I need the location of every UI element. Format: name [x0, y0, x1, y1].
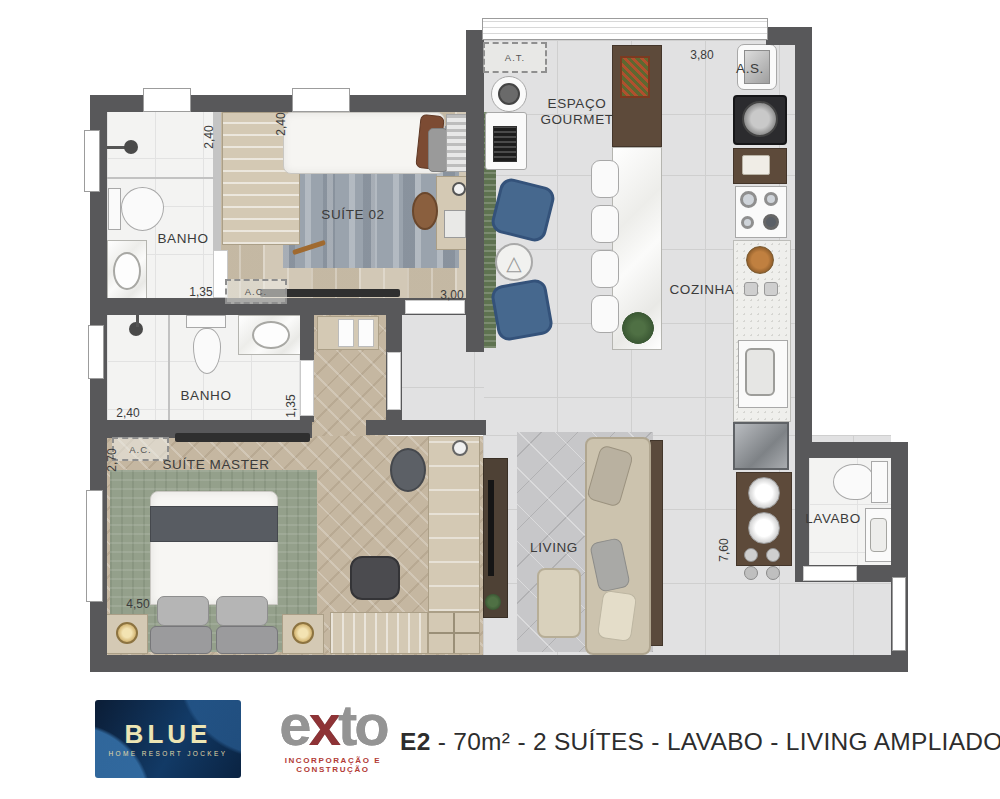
dim-gourmet: 3,80: [682, 48, 722, 62]
oven: [733, 422, 789, 470]
plan-caption: E2 - 70m² - 2 SUÍTES - LAVABO - LIVING A…: [400, 728, 980, 756]
living-ottoman: [537, 568, 581, 638]
master-bed-blanket: [150, 506, 278, 542]
plate-large-2: [748, 512, 780, 544]
wall-top-right-corner: [766, 27, 812, 45]
plate-large-1: [748, 477, 780, 509]
plate-small-1: [744, 548, 758, 562]
room-label-living: LIVING: [504, 540, 604, 556]
shower-glass-banho1: [107, 177, 215, 179]
master-bench: [350, 556, 400, 600]
exto-letter-x: x: [309, 692, 338, 757]
lamp-right: [292, 622, 314, 644]
exto-tagline: INCORPORAÇÃO E CONSTRUÇÃO: [258, 756, 408, 774]
burner-2: [764, 192, 778, 206]
master-wardrobe: [330, 612, 428, 654]
grill-plate: [498, 83, 520, 105]
dim-banho2-horizontal: 2,40: [108, 406, 148, 420]
balcony-railing: [482, 18, 768, 40]
dim-master-horizontal: 4,50: [118, 597, 158, 611]
plan-caption-unit: E2: [400, 728, 431, 755]
lamp-left: [116, 622, 138, 644]
food-tray: [620, 56, 650, 98]
toilet-tank-banho2: [186, 315, 226, 328]
plan-caption-details: - 70m² - 2 SUÍTES - LAVABO - LIVING AMPL…: [431, 728, 1000, 755]
at-box: A.T.: [483, 42, 547, 73]
master-tv: [175, 433, 310, 442]
footer: BLUE HOME RESORT JOCKEY exto INCORPORAÇÃ…: [0, 688, 1000, 799]
door-lavabo: [803, 566, 857, 581]
window-banho1-left: [84, 130, 100, 192]
suite02-desk-lamp: [452, 182, 466, 196]
room-label-banho1: BANHO: [133, 231, 233, 247]
toilet-tank-banho1: [108, 188, 121, 230]
sofa-cushion-3: [597, 590, 637, 642]
door-bedroom-wing: [387, 352, 401, 410]
burner-3: [741, 216, 754, 229]
room-label-suite-master: SUÍTE MASTER: [136, 457, 296, 473]
dim-suite02-vertical: 2,40: [274, 104, 288, 144]
room-label-cozinha: COZINHA: [652, 282, 752, 298]
dim-banho1-vertical: 2,40: [202, 117, 216, 157]
ac-label-suite02: A.C.: [245, 286, 267, 297]
exto-logo: exto INCORPORAÇÃO E CONSTRUÇÃO: [258, 696, 408, 776]
blue-logo-card: BLUE HOME RESORT JOCKEY: [95, 700, 241, 778]
island-plant: [622, 312, 654, 344]
master-pillow-1: [157, 596, 209, 626]
suite02-desk-laptop: [444, 210, 466, 238]
ac-label-master: A.C.: [129, 444, 151, 455]
living-tv: [488, 480, 494, 576]
floor-plan: △: [0, 0, 1000, 799]
side-table: △: [495, 243, 533, 281]
armchair-blue-2: [490, 278, 555, 343]
exto-wordmark: exto: [258, 696, 408, 754]
dim-master-vertical: 2,70: [105, 440, 119, 480]
shower-head-banho1: [124, 140, 138, 154]
sink-basin-banho1: [113, 252, 141, 290]
room-label-gourmet: ESPAÇO GOURMET: [527, 96, 627, 128]
cup-small-2: [766, 566, 780, 580]
island-stool-4: [591, 295, 619, 333]
vanity-stool: [390, 448, 426, 492]
fridge-vent: [493, 126, 517, 162]
island-stool-3: [591, 250, 619, 288]
towel-1: [338, 319, 354, 347]
door-banho2: [300, 360, 314, 416]
window-suite-master-left: [86, 490, 103, 602]
fruit-bowl: [746, 246, 774, 274]
suite02-desk-chair: [412, 192, 438, 230]
blue-logo-title: BLUE: [125, 722, 212, 746]
toilet-tank-lavabo: [871, 461, 888, 503]
room-label-banho2: BANHO: [156, 388, 256, 404]
window-banho2-left: [88, 325, 104, 379]
vanity-mirror: [452, 440, 468, 456]
dim-banho2-vertical: 1,35: [284, 386, 298, 426]
at-label: A.T.: [505, 52, 525, 63]
master-headboard-2: [216, 626, 278, 654]
sofa-console: [650, 440, 663, 646]
living-plant: [485, 594, 501, 610]
kitchen-sink-basin: [745, 348, 775, 396]
toilet-bowl-lavabo: [833, 464, 875, 500]
exto-letter-e: e: [279, 692, 308, 757]
door-suite02: [405, 300, 465, 314]
wall-right-exterior: [795, 32, 812, 445]
dim-banho1-horizontal: 1,35: [181, 285, 221, 299]
counter-item-2: [764, 282, 778, 296]
dim-suite02-horizontal: 3,00: [432, 288, 472, 302]
wall-bottom-exterior: [90, 655, 908, 672]
shower-hose-banho2: [136, 313, 139, 327]
blue-logo-subtitle: HOME RESORT JOCKEY: [108, 750, 227, 757]
wall-pocket-bottom: [366, 420, 486, 435]
master-pillow-2: [216, 596, 268, 626]
master-headboard-1: [150, 626, 212, 654]
plate-small-2: [766, 548, 780, 562]
ac-box-suite02: A.C.: [225, 279, 287, 304]
sink-basin-banho2: [252, 321, 290, 349]
towel-2: [358, 319, 374, 347]
burner-1: [740, 191, 757, 208]
shower-glass-banho2: [168, 315, 170, 420]
room-label-lavabo: LAVABO: [783, 511, 883, 527]
window-suite02-top: [292, 88, 350, 112]
window-banho1-top: [143, 88, 191, 112]
exto-letters-to: to: [338, 692, 387, 757]
suite02-headboard: [446, 114, 468, 172]
master-vanity: [428, 436, 480, 612]
burner-4: [763, 214, 779, 230]
master-drawer-unit: [428, 612, 480, 654]
dim-cozinha-vertical: 7,60: [717, 530, 731, 570]
window-living-right: [892, 577, 906, 651]
cutting-boards: [742, 155, 770, 175]
washing-machine-drum: [742, 101, 778, 137]
island-stool-2: [591, 205, 619, 243]
room-label-suite02: SUÍTE 02: [293, 207, 413, 223]
island-stool-1: [591, 160, 619, 198]
suite02-pillow-gray: [428, 128, 448, 172]
cup-small-1: [744, 566, 758, 580]
as-label: A.S.: [720, 61, 780, 77]
